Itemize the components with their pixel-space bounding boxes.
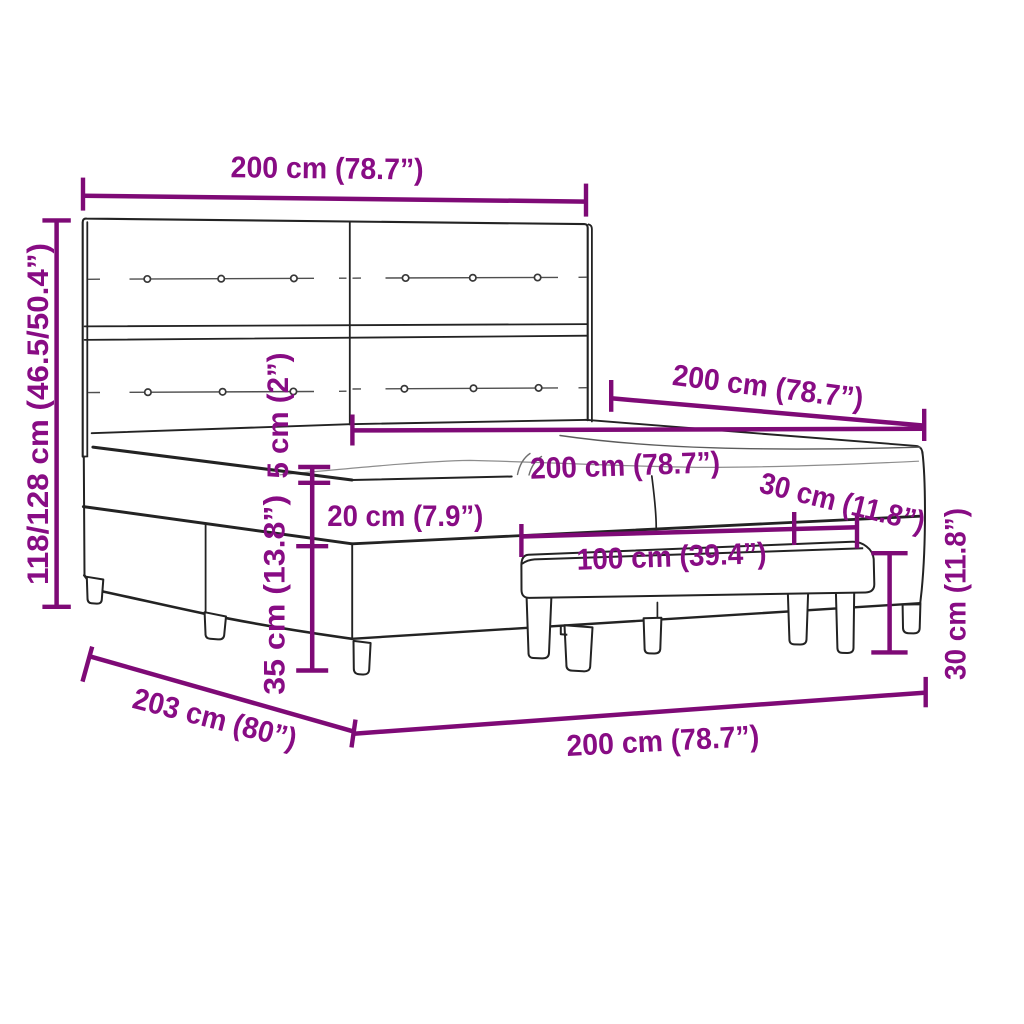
svg-text:20 cm (7.9”): 20 cm (7.9”) [327, 500, 483, 533]
svg-text:100 cm (39.4”): 100 cm (39.4”) [576, 537, 767, 577]
svg-text:30 cm (11.8”): 30 cm (11.8”) [940, 508, 973, 680]
svg-text:200 cm (78.7”): 200 cm (78.7”) [530, 446, 721, 486]
svg-text:5 cm (2”): 5 cm (2”) [262, 353, 295, 479]
svg-text:118/128 cm (46.5/50.4”): 118/128 cm (46.5/50.4”) [22, 243, 55, 585]
svg-text:200 cm (78.7”): 200 cm (78.7”) [230, 151, 423, 186]
svg-text:35 cm (13.8”): 35 cm (13.8”) [259, 495, 292, 695]
